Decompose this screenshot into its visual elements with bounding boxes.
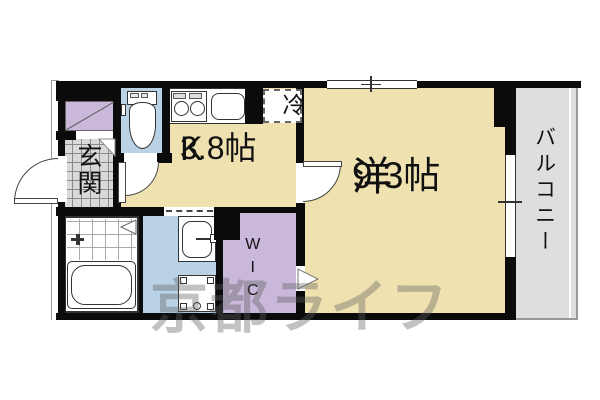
watermark-text: 京都ライフ	[150, 260, 450, 344]
window-top-tick-h	[361, 84, 381, 85]
balcony-edge-line	[569, 88, 571, 318]
wall-left-lower	[58, 202, 65, 320]
kitchen-size: 3.8帖	[180, 131, 257, 166]
bathtub-inner	[71, 265, 132, 305]
floorplan: K 3.8帖 洋 9.3帖 冷 玄関 WIC バルコニー 京都ライフ	[0, 0, 600, 400]
entry-opening	[57, 156, 67, 202]
shoe-closet	[65, 101, 115, 131]
stove-burner-left	[174, 101, 189, 116]
washroom-door-dashes	[166, 210, 213, 212]
wall-counter-pillar	[245, 81, 263, 124]
toilet-door-leaf	[118, 162, 126, 203]
wall-toilet-right	[162, 88, 170, 153]
stove-grill	[173, 93, 186, 99]
wall-toilet-bottom-right	[157, 153, 172, 163]
stove-controls	[189, 93, 202, 99]
balcony-label: バルコニー	[532, 126, 555, 256]
refrigerator-label: 冷	[283, 91, 306, 120]
toilet-control-panel	[121, 104, 126, 116]
toilet-tank-button	[130, 93, 139, 98]
entry-door-arc	[14, 158, 58, 202]
wall-divider-mid	[296, 202, 305, 266]
wall-bath-wash	[139, 213, 143, 313]
refrigerator-space: 冷	[263, 89, 302, 123]
entrance-label: 玄関	[74, 143, 101, 197]
toilet-tank-button2	[141, 93, 148, 98]
entry-door-leaf	[14, 198, 58, 204]
stove-burner-right	[190, 101, 205, 116]
wall-right-lower	[505, 257, 516, 313]
bath-faucet-knob	[76, 234, 80, 245]
wall-horizontal	[56, 207, 166, 216]
kitchen-door-leaf	[303, 161, 342, 167]
wall-entrance-chunk	[56, 131, 76, 140]
wall-wic-top	[240, 207, 297, 213]
window-balcony	[505, 155, 516, 257]
wall-wic-block	[214, 207, 240, 240]
window-balcony-tick	[498, 201, 522, 203]
wall-pillar-topright	[494, 88, 516, 127]
wall-left-upper	[58, 95, 65, 156]
living-room-size: 9.3帖	[352, 156, 440, 196]
sink-icon	[211, 93, 245, 120]
wall-topleft-block	[56, 81, 118, 101]
toilet-bowl-icon	[129, 102, 156, 149]
